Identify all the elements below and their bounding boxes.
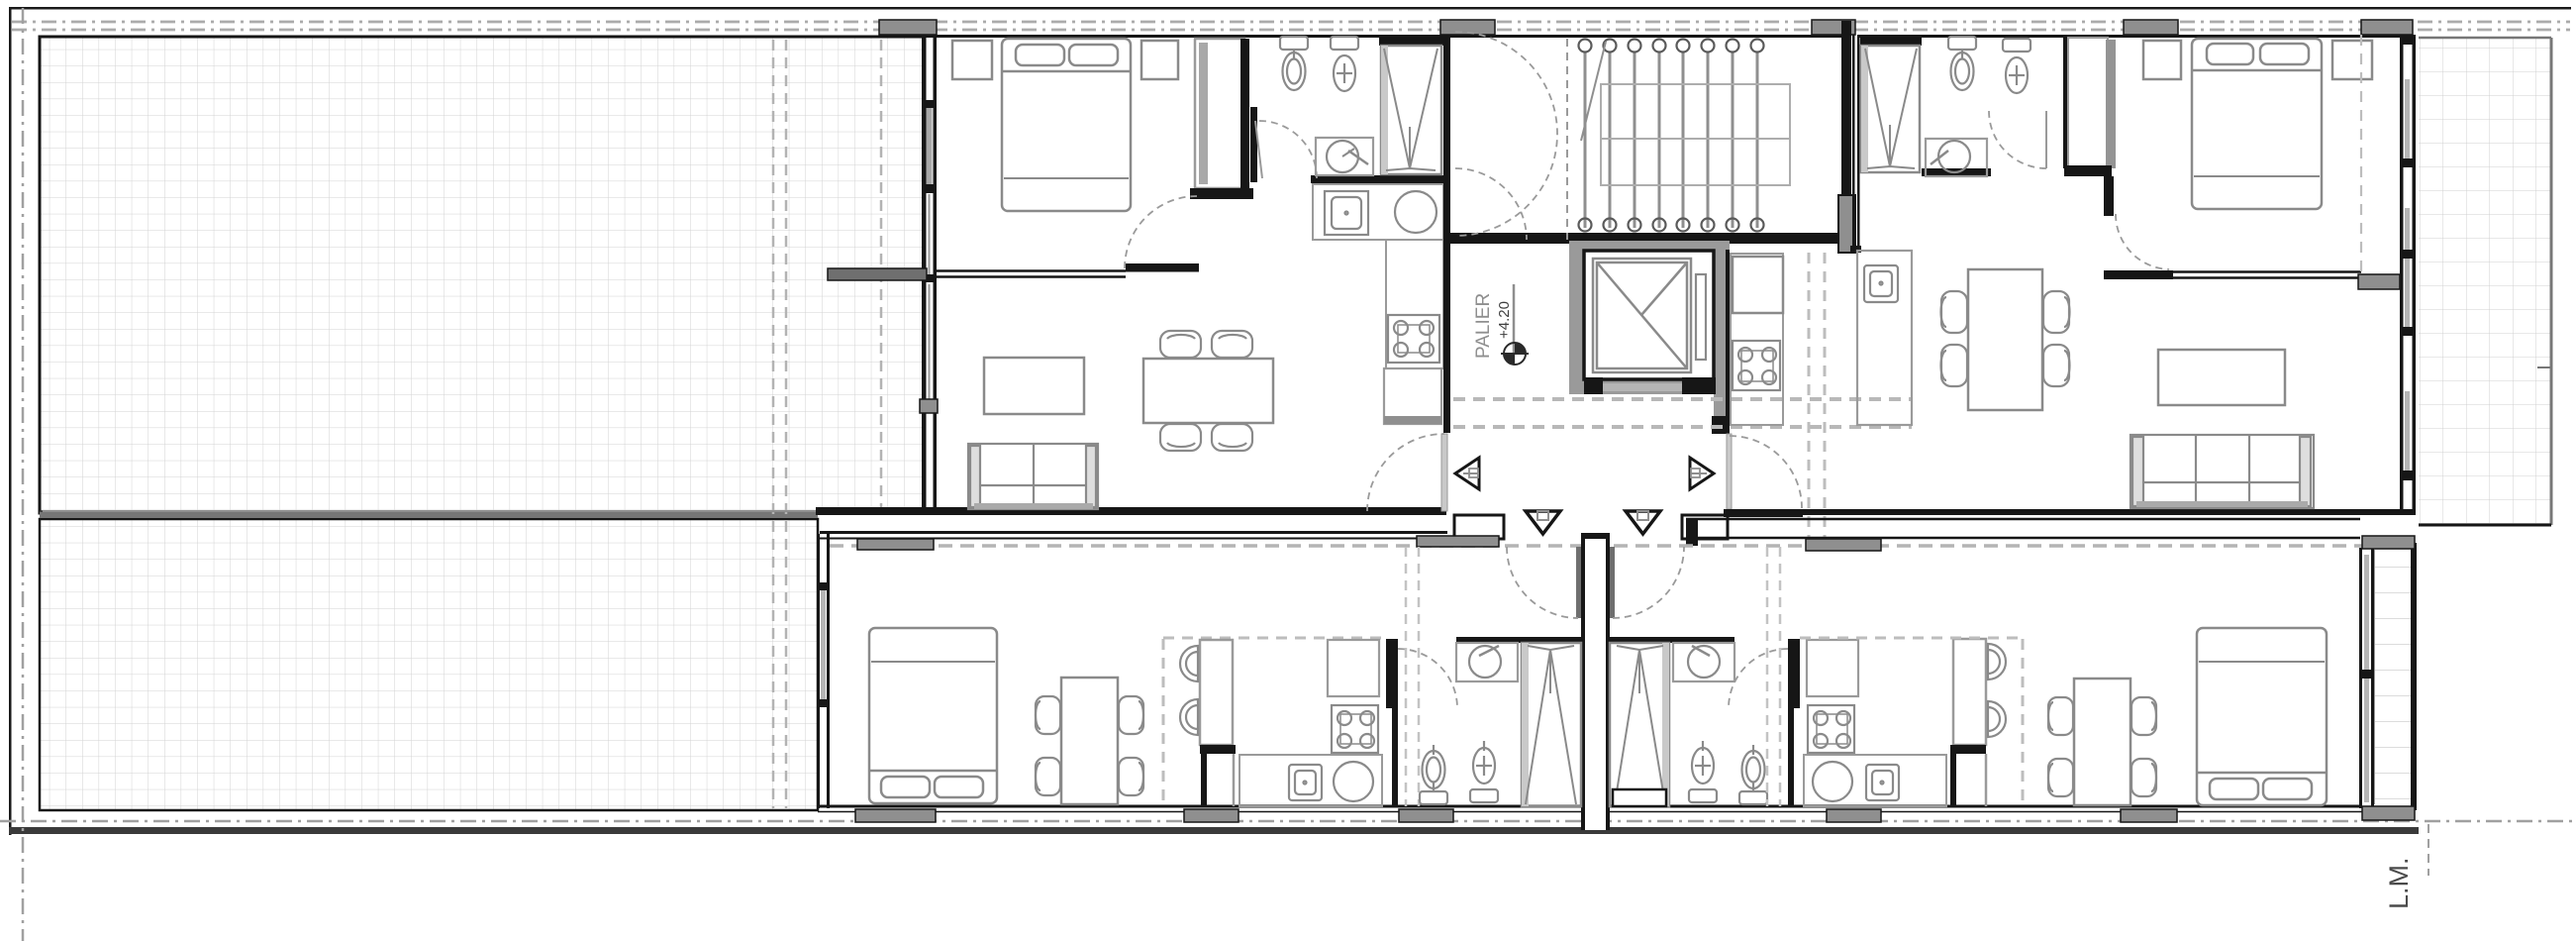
- svg-text:+4.20: +4.20: [1496, 301, 1513, 339]
- svg-text:L.M.: L.M.: [2384, 857, 2414, 909]
- svg-text:PALIER: PALIER: [1473, 293, 1494, 359]
